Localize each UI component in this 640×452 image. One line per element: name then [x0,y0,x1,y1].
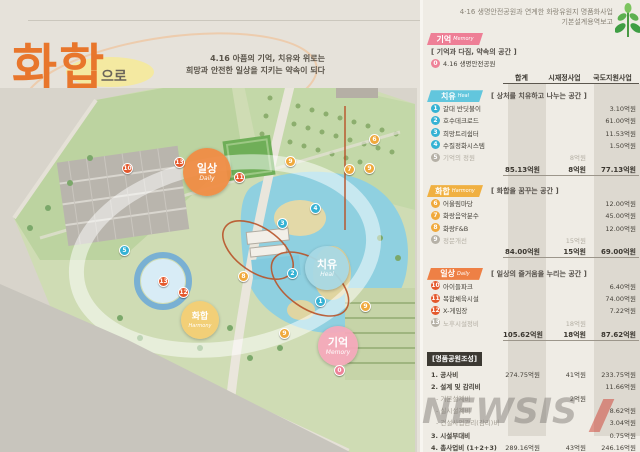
value-cell [503,152,543,162]
table-row: - 실시설계비8.62억원 [423,404,640,416]
map-marker-13: 13 [174,157,185,168]
report-poster: 화합 으로 순환 하다 4.16 아픔의 기억, 치유와 위로는 희망과 안전한… [0,0,640,452]
section-desc-memory: [ 기억과 다짐, 약속의 공간 ] [431,47,640,57]
section-banner-memory: 기억 Memory [427,33,483,45]
item-label: 4. 총사업비 (1+2+3) [431,442,497,452]
section-desc-heal: [ 상처를 치유하고 나누는 공간 ] [491,91,587,101]
table-row: 3희망트리쉼터11.53억원 [423,127,640,139]
map-marker-8: 8 [238,271,249,282]
table-row: 13노후시설정비18억원 [423,316,640,328]
value-cell [503,281,543,291]
zone-name: 일상 [197,163,217,175]
map-marker-9: 9 [360,301,371,312]
item-number-badge: 1 [431,104,440,113]
subtitle-line1: 4.16 아픔의 기억, 치유와 위로는 [120,53,325,65]
value-cell [543,417,589,427]
table-row: 2. 설계 및 감리비11.66억원 [423,380,640,392]
map-marker-9: 9 [279,328,290,339]
item-label: 노후시설정비 [443,318,479,328]
item-label: 2. 설계 및 감리비 [431,381,481,391]
rows-memory: 04.16 생명안전공원 [423,57,640,69]
section-desc-harmony: [ 화합을 꿈꾸는 공간 ] [491,186,559,196]
value-cell [503,210,543,220]
section-label: 화합 [435,186,450,197]
section-banner-daily: 일상 Daily [427,268,483,280]
value-cell [589,235,639,245]
value-cell [543,115,589,125]
section-banner-harmony: 화합 Harmony [427,185,483,197]
value-cell [543,103,589,113]
item-number-badge: 13 [431,318,440,327]
item-label: 갈대 반딧불이 [443,103,481,113]
value-cell [543,430,589,440]
value-cell [543,128,589,138]
item-label: 화랑F&B [443,223,468,233]
zone-name: 치유 [317,259,337,271]
section-label: 치유 [441,91,456,102]
map-marker-10: 10 [122,163,133,174]
item-label: - 건설사업관리(감리)비 [431,417,499,427]
item-number-badge: 4 [431,140,440,149]
value-cell: 2억원 [543,393,589,403]
value-cell [543,223,589,233]
table-row: 04.16 생명안전공원 [423,57,640,69]
value-cell: 289.16억원 [503,442,543,452]
table-row: 7화랑음악분수45.00억원 [423,209,640,221]
value-cell: 61.00억원 [589,115,639,125]
section-desc-daily: [ 일상의 즐거움을 누리는 공간 ] [491,269,587,279]
value-cell [589,152,639,162]
value-cell: 18억원 [543,330,589,340]
value-cell: 69.00억원 [589,247,639,257]
value-cell: 6.40억원 [589,281,639,291]
rows-final-summary: 1. 공사비274.75억원41억원233.75억원2. 설계 및 감리비11.… [423,368,640,452]
table-row: 6어울림마당12.00억원 [423,197,640,209]
table-row: 105.62억원18억원87.62억원 [423,329,640,343]
value-cell [543,140,589,150]
item-label: 어울림마당 [443,198,473,208]
value-cell: 8억원 [543,152,589,162]
map-marker-3: 3 [277,218,288,229]
value-cell [503,381,543,391]
item-label: 수질정화시스템 [443,140,485,150]
table-row: 9정문개선15억원 [423,234,640,246]
value-cell [589,393,639,403]
zone-label-memory: 기억 Memory [318,326,358,366]
value-cell [503,430,543,440]
item-number-badge: 5 [431,153,440,162]
zone-name: 기억 [328,337,348,349]
value-cell: 15억원 [543,247,589,257]
item-number-badge: 8 [431,223,440,232]
zone-name-en: Harmony [189,323,212,330]
item-label: 기억의 정원 [443,152,475,162]
value-cell: 1.50억원 [589,140,639,150]
value-cell: 41억원 [543,369,589,379]
value-cell: 85.13억원 [503,165,543,175]
value-cell [503,293,543,303]
value-cell [503,103,543,113]
table-row: 10아이들파크6.40억원 [423,280,640,292]
table-row: 1갈대 반딧불이3.10억원 [423,102,640,114]
value-cell [543,198,589,208]
value-cell: 87.62억원 [589,330,639,340]
map-marker-0: 0 [334,365,345,376]
rows-daily: 10아이들파크6.40억원11복합체육시설74.00억원12X-게임장7.22억… [423,280,640,343]
value-cell [503,417,543,427]
map-marker-4: 4 [310,203,321,214]
item-label: 3. 시설부대비 [431,430,470,440]
value-cell: 43억원 [543,442,589,452]
map-marker-13: 13 [158,276,169,287]
value-cell [503,198,543,208]
table-row: 11복합체육시설74.00억원 [423,292,640,304]
value-cell: 74.00억원 [589,293,639,303]
value-cell [543,293,589,303]
section-label: 기억 [436,34,451,45]
table-row: 2호수데크로드61.00억원 [423,114,640,126]
value-cell [503,223,543,233]
value-cell [503,405,543,415]
value-cell [589,318,639,328]
item-label: - 기본설계비 [431,393,470,403]
value-cell [543,381,589,391]
value-cell: 3.10억원 [589,103,639,113]
table-row: 4수질정화시스템1.50억원 [423,139,640,151]
value-cell [543,210,589,220]
rows-heal: 1갈대 반딧불이3.10억원2호수데크로드61.00억원3희망트리쉼터11.53… [423,102,640,177]
value-cell: 18억원 [543,318,589,328]
value-cell [543,281,589,291]
zone-name-en: Heal [320,271,334,278]
item-number-badge: 2 [431,116,440,125]
item-label: 정문개선 [443,235,467,245]
map-marker-2: 2 [287,268,298,279]
col-header-support: 국도지원사업 [589,73,639,83]
map-marker-7: 7 [344,164,355,175]
value-cell: 11.53억원 [589,128,639,138]
item-label: 희망트리쉼터 [443,128,479,138]
item-number-badge: 0 [431,59,440,68]
item-label: 호수데크로드 [443,115,479,125]
item-label: 복합체육시설 [443,293,479,303]
budget-panel: 4·16 생명안전공원과 연계한 화랑유원지 명품화사업 기본설계용역보고 기억… [420,0,640,452]
value-cell [503,305,543,315]
map-marker-9: 9 [364,163,375,174]
item-label: 아이들파크 [443,281,473,291]
value-cell: 15억원 [543,235,589,245]
table-row: 84.00억원15억원69.00억원 [423,246,640,260]
col-header-city: 시재정사업 [543,73,589,83]
value-cell [543,305,589,315]
item-label: - 실시설계비 [431,405,470,415]
zone-label-harmony: 화합 Harmony [181,301,219,339]
final-section-badge: [명품공원조성] [427,352,482,366]
item-number-badge: 3 [431,128,440,137]
table-row: - 기본설계비2억원 [423,392,640,404]
table-row: 85.13억원8억원77.13억원 [423,163,640,177]
value-cell: 105.62억원 [503,330,543,340]
table-row: 1. 공사비274.75억원41억원233.75억원 [423,368,640,380]
zone-label-daily: 일상 Daily [183,148,231,196]
map-marker-11: 11 [234,172,245,183]
park-map-illustration [0,88,417,452]
value-cell: 77.13억원 [589,165,639,175]
value-cell: 45.00억원 [589,210,639,220]
value-cell: 233.75억원 [589,369,639,379]
value-cell: 3.04억원 [589,417,639,427]
item-number-badge: 11 [431,294,440,303]
value-cell [503,235,543,245]
value-cell [503,128,543,138]
item-label: X-게임장 [443,305,467,315]
item-label: 1. 공사비 [431,369,458,379]
value-cell: 7.22억원 [589,305,639,315]
report-header-line2: 기본설계용역보고 [423,17,613,27]
table-column-header: 합계 시재정사업 국도지원사업 [423,71,640,84]
subtitle-line2: 희망과 안전한 일상을 지키는 약속이 되다 [120,65,325,77]
table-row: 5기억의 정원8억원 [423,151,640,163]
title-subtitle: 4.16 아픔의 기억, 치유와 위로는 희망과 안전한 일상을 지키는 약속이… [120,53,325,77]
zone-label-heal: 치유 Heal [305,246,349,290]
value-cell [503,393,543,403]
item-number-badge: 6 [431,199,440,208]
value-cell [503,140,543,150]
value-cell [543,405,589,415]
value-cell: 274.75억원 [503,369,543,379]
item-number-badge: 12 [431,306,440,315]
section-label: 일상 [440,268,455,279]
table-row: 3. 시설부대비0.75억원 [423,429,640,441]
value-cell: 0.75억원 [589,430,639,440]
map-marker-12: 12 [178,287,189,298]
map-marker-5: 5 [119,245,130,256]
section-label-en: Heal [458,93,469,99]
report-header: 4·16 생명안전공원과 연계한 화랑유원지 명품화사업 기본설계용역보고 [423,0,640,27]
value-cell: 84.00억원 [503,247,543,257]
value-cell: 8억원 [543,165,589,175]
section-label-en: Harmony [452,188,475,194]
zone-name-en: Memory [326,349,350,356]
value-cell: 12.00억원 [589,223,639,233]
item-label: 4.16 생명안전공원 [443,58,495,68]
table-row: 12X-게임장7.22억원 [423,304,640,316]
map-marker-9: 9 [285,156,296,167]
value-cell: 11.66억원 [589,381,639,391]
value-cell: 12.00억원 [589,198,639,208]
table-row: 4. 총사업비 (1+2+3)289.16억원43억원246.16억원 [423,441,640,452]
item-number-badge: 9 [431,235,440,244]
zone-name-en: Daily [199,175,214,182]
value-cell [503,115,543,125]
section-banner-heal: 치유 Heal [427,90,483,102]
value-cell: 8.62억원 [589,405,639,415]
section-label-en: Daily [457,271,470,277]
map-marker-1: 1 [315,296,326,307]
value-cell: 246.16억원 [589,442,639,452]
map-marker-6: 6 [369,134,380,145]
value-cell [503,318,543,328]
rows-harmony: 6어울림마당12.00억원7화랑음악분수45.00억원8화랑F&B12.00억원… [423,197,640,260]
item-number-badge: 7 [431,211,440,220]
section-label-en: Memory [453,36,473,42]
table-row: - 건설사업관리(감리)비3.04억원 [423,416,640,428]
report-header-line1: 4·16 생명안전공원과 연계한 화랑유원지 명품화사업 [423,7,613,17]
col-header-total: 합계 [503,73,543,83]
item-label: 화랑음악분수 [443,210,479,220]
zone-name: 화합 [192,311,209,323]
item-number-badge: 10 [431,281,440,290]
table-row: 8화랑F&B12.00억원 [423,222,640,234]
